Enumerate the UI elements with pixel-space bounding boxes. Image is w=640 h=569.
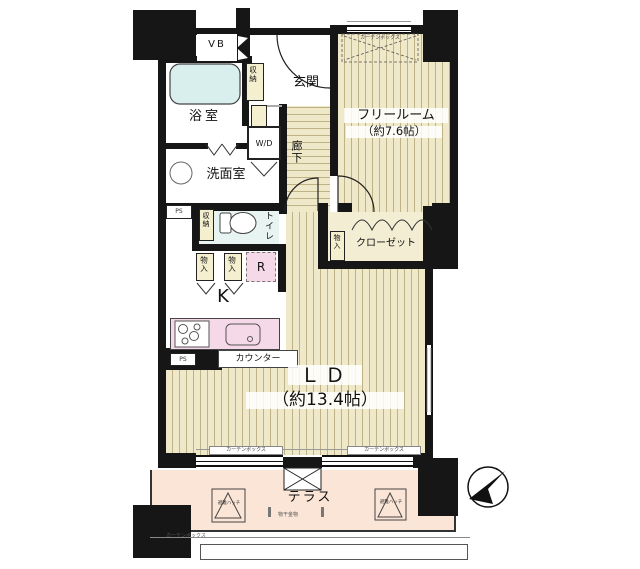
bathroom-label: 浴室 (178, 110, 232, 123)
toilet-storage: 収納 (199, 209, 214, 241)
ld-size-label: （約13.4帖） (246, 392, 404, 409)
railing-panel (200, 544, 468, 560)
cabinet-label: 物入 (333, 234, 340, 250)
ld-terrace-window-right (322, 455, 413, 467)
curtain-box-label: カーテンボックス (348, 448, 420, 453)
kitchen-cabinet-left: 物入 (196, 253, 214, 281)
pipe-space-lower: PS (170, 353, 196, 366)
washer-dryer-label: W/D (249, 140, 279, 148)
refrigerator-label: R (247, 261, 275, 273)
closet-label: クローゼット (348, 239, 424, 249)
cabinet-label: 物入 (200, 256, 208, 273)
floorplan-canvas: 収納 W/D PS 収納 物入 物入 R カウンター PS 物入 VB 浴室 洗… (0, 0, 640, 569)
wall (283, 457, 322, 468)
wall (425, 415, 433, 458)
curtain-box-label: カーテンボックス (352, 36, 408, 41)
wall (318, 203, 328, 269)
kitchen-counter (170, 318, 280, 350)
compass-icon (468, 467, 508, 507)
bathtub-icon (170, 64, 240, 104)
closet-cabinet: 物入 (330, 231, 345, 261)
escape-hatch-label-right: 避難ハッチ (376, 501, 406, 506)
wall (450, 62, 458, 208)
hallway-label: 廊下 (291, 140, 302, 164)
free-room-label: フリールーム (344, 108, 448, 123)
escape-hatch-label-left: 避難ハッチ (214, 502, 244, 507)
cabinet-label: 物入 (228, 256, 236, 273)
wall (338, 203, 352, 212)
ld-terrace-window-left (196, 455, 283, 467)
washroom-label: 洗面室 (196, 168, 256, 181)
wall (192, 208, 199, 248)
curtain-box-tag-left: カーテンボックス (209, 446, 283, 455)
free-room-window (347, 25, 411, 34)
wall (330, 28, 338, 176)
pipe-space-upper: PS (166, 205, 192, 219)
counter-label-box: カウンター (218, 350, 298, 368)
pipe-space-label: PS (171, 357, 195, 363)
ld-side-window (425, 345, 433, 415)
washer-dryer-space: W/D (247, 126, 281, 160)
refrigerator-space: R (246, 252, 276, 282)
toilet-label: トイレ (263, 211, 272, 241)
laundry-bracket-label: 物干金物 (278, 513, 298, 518)
washer-icon (170, 162, 192, 184)
free-room-size-label: （約7.6帖） (346, 126, 442, 138)
bath-folding-door (206, 144, 238, 155)
laundry-bracket-post (268, 507, 271, 517)
counter-label: カウンター (219, 355, 297, 364)
structural-column (423, 206, 458, 268)
vb-door-column (236, 8, 250, 62)
wall (278, 244, 286, 292)
structural-column (418, 458, 458, 516)
structural-column (133, 505, 191, 558)
wall (158, 143, 208, 149)
storage-label: 収納 (249, 66, 257, 83)
entrance-label: 玄関 (286, 76, 326, 89)
structural-column (423, 10, 458, 62)
entrance-storage-lower (251, 105, 267, 127)
wall (158, 453, 196, 468)
kitchen-label: K (203, 288, 243, 306)
pipe-space-label: PS (167, 209, 191, 215)
curtain-box-tag-right: カーテンボックス (347, 446, 421, 455)
kitchen-cabinet-right: 物入 (224, 253, 242, 281)
vb-label: VB (197, 40, 237, 50)
curtain-box-label: カーテンボックス (210, 448, 282, 453)
window-sill-line (347, 21, 411, 22)
storage-label: 収納 (202, 212, 209, 228)
entrance-storage: 収納 (246, 63, 264, 101)
laundry-bracket-post (321, 507, 324, 517)
railing-line (150, 537, 470, 538)
wall (158, 60, 166, 462)
wall (192, 244, 286, 251)
terrace-label: テラス (282, 491, 338, 504)
ld-label: ＬＤ (288, 365, 362, 385)
wall (425, 266, 433, 345)
structural-column (133, 10, 196, 60)
